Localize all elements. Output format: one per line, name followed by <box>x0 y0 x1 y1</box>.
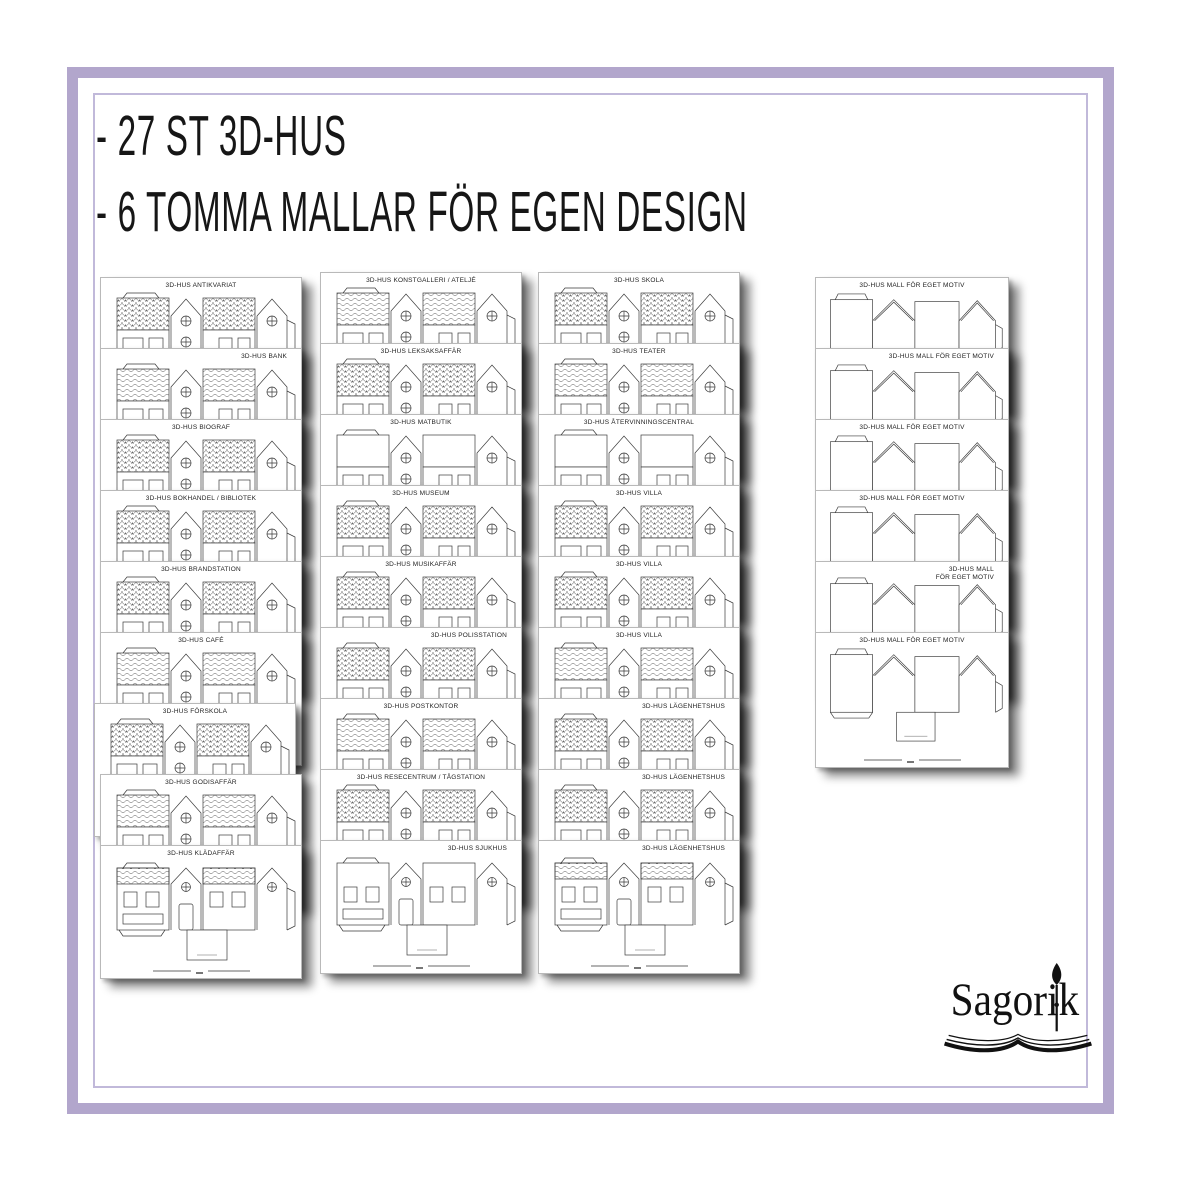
house-template-drawing <box>101 860 301 978</box>
template-sheet: 3D-HUS SJUKHUS <box>320 840 522 974</box>
fineprint-text-right <box>208 970 250 972</box>
sheet-title: 3D-HUS MALL FÖR EGET MOTIV <box>816 495 1008 503</box>
template-sheet: 3D-HUS MALL FÖR EGET MOTIV <box>815 632 1009 768</box>
sheet-title: 3D-HUS GODISAFFÄR <box>101 779 301 787</box>
sheet-title: 3D-HUS LÄGENHETSHUS <box>539 845 739 853</box>
sheet-title: 3D-HUS LÄGENHETSHUS <box>539 774 739 782</box>
sheet-title: 3D-HUS KLÄDAFFÄR <box>101 850 301 858</box>
footer-fineprint <box>101 967 301 974</box>
sheet-title: 3D-HUS MALL FÖR EGET MOTIV <box>816 566 1008 582</box>
sheet-title: 3D-HUS LEKSAKSAFFÄR <box>321 348 521 356</box>
sheet-title: 3D-HUS VILLA <box>539 490 739 498</box>
fineprint-text-left <box>373 965 411 967</box>
fineprint-text-left <box>591 965 629 967</box>
sheet-title: 3D-HUS MALL FÖR EGET MOTIV <box>816 424 1008 432</box>
sheet-title: 3D-HUS MATBUTIK <box>321 419 521 427</box>
product-showcase: - 27 ST 3D-HUS - 6 TOMMA MALLAR FÖR EGEN… <box>0 0 1181 1181</box>
sheet-title: 3D-HUS SKOLA <box>539 277 739 285</box>
headline: - 27 ST 3D-HUS - 6 TOMMA MALLAR FÖR EGEN… <box>96 104 1114 256</box>
house-template-drawing <box>321 855 521 973</box>
template-sheet: 3D-HUS KLÄDAFFÄR <box>100 845 302 979</box>
house-template-drawing <box>539 855 739 973</box>
sheet-title: 3D-HUS TEATER <box>539 348 739 356</box>
sheet-title: 3D-HUS BRANDSTATION <box>101 566 301 574</box>
sagorik-logo: Sagorik <box>938 962 1102 1068</box>
sheet-title: 3D-HUS BIOGRAF <box>101 424 301 432</box>
sheet-title: 3D-HUS MUSIKAFFÄR <box>321 561 521 569</box>
sheet-title: 3D-HUS BANK <box>101 353 301 361</box>
sheet-title: 3D-HUS MALL FÖR EGET MOTIV <box>816 637 1008 645</box>
fineprint-text-right <box>428 965 470 967</box>
sheet-title: 3D-HUS POLISSTATION <box>321 632 521 640</box>
sheet-title: 3D-HUS FÖRSKOLA <box>95 708 295 716</box>
footer-fineprint <box>816 756 1008 763</box>
sheet-title: 3D-HUS ANTIKVARIAT <box>101 282 301 290</box>
template-sheet: 3D-HUS LÄGENHETSHUS <box>538 840 740 974</box>
fineprint-logo-icon <box>416 962 423 969</box>
fineprint-logo-icon <box>196 967 203 974</box>
fineprint-text-right <box>919 759 961 761</box>
sheet-title: 3D-HUS MUSEUM <box>321 490 521 498</box>
fineprint-text-left <box>153 970 191 972</box>
headline-line-1: - 27 ST 3D-HUS <box>96 104 748 186</box>
sheet-title: 3D-HUS ÅTERVINNINGSCENTRAL <box>539 419 739 427</box>
fineprint-logo-icon <box>907 756 914 763</box>
sheet-title: 3D-HUS CAFÉ <box>101 637 301 645</box>
sheet-title: 3D-HUS VILLA <box>539 632 739 640</box>
open-book-icon <box>945 1034 1092 1050</box>
logo-text: Sagorik <box>951 974 1080 1026</box>
sheet-title: 3D-HUS POSTKONTOR <box>321 703 521 711</box>
fineprint-logo-icon <box>634 962 641 969</box>
sheet-title: 3D-HUS MALL FÖR EGET MOTIV <box>816 353 1008 361</box>
headline-line-2: - 6 TOMMA MALLAR FÖR EGEN DESIGN <box>96 180 748 262</box>
fineprint-text-right <box>646 965 688 967</box>
sheet-title: 3D-HUS KONSTGALLERI / ATELJÉ <box>321 277 521 285</box>
sheet-title: 3D-HUS BOKHANDEL / BIBLIOTEK <box>101 495 301 503</box>
footer-fineprint <box>539 962 739 969</box>
house-template-drawing <box>816 647 1008 762</box>
sheet-title: 3D-HUS RESECENTRUM / TÅGSTATION <box>321 774 521 782</box>
footer-fineprint <box>321 962 521 969</box>
sheet-title: 3D-HUS SJUKHUS <box>321 845 521 853</box>
sheet-title: 3D-HUS VILLA <box>539 561 739 569</box>
fineprint-text-left <box>864 759 902 761</box>
sheet-title: 3D-HUS LÄGENHETSHUS <box>539 703 739 711</box>
sheet-title: 3D-HUS MALL FÖR EGET MOTIV <box>816 282 1008 290</box>
